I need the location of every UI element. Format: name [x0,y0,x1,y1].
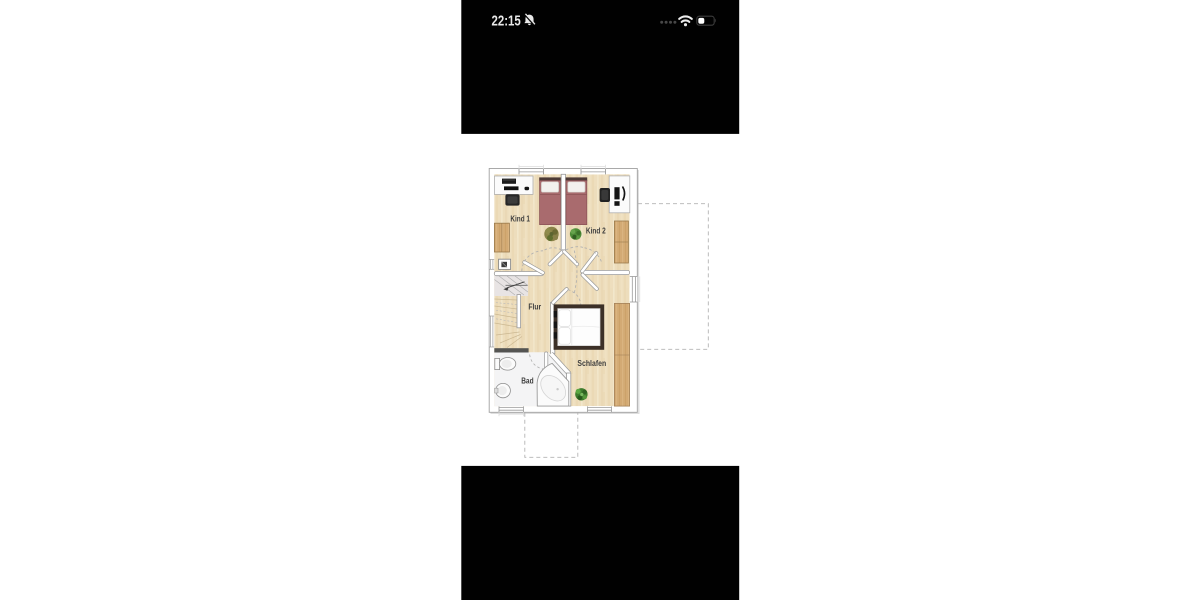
svg-text:Schlafen: Schlafen [577,358,606,368]
svg-text:Flur: Flur [528,301,541,311]
svg-text:Bad: Bad [521,377,533,386]
svg-text:Kind 2: Kind 2 [586,226,606,235]
svg-text:Kind 1: Kind 1 [510,215,530,224]
svg-text:22:15: 22:15 [492,14,521,30]
